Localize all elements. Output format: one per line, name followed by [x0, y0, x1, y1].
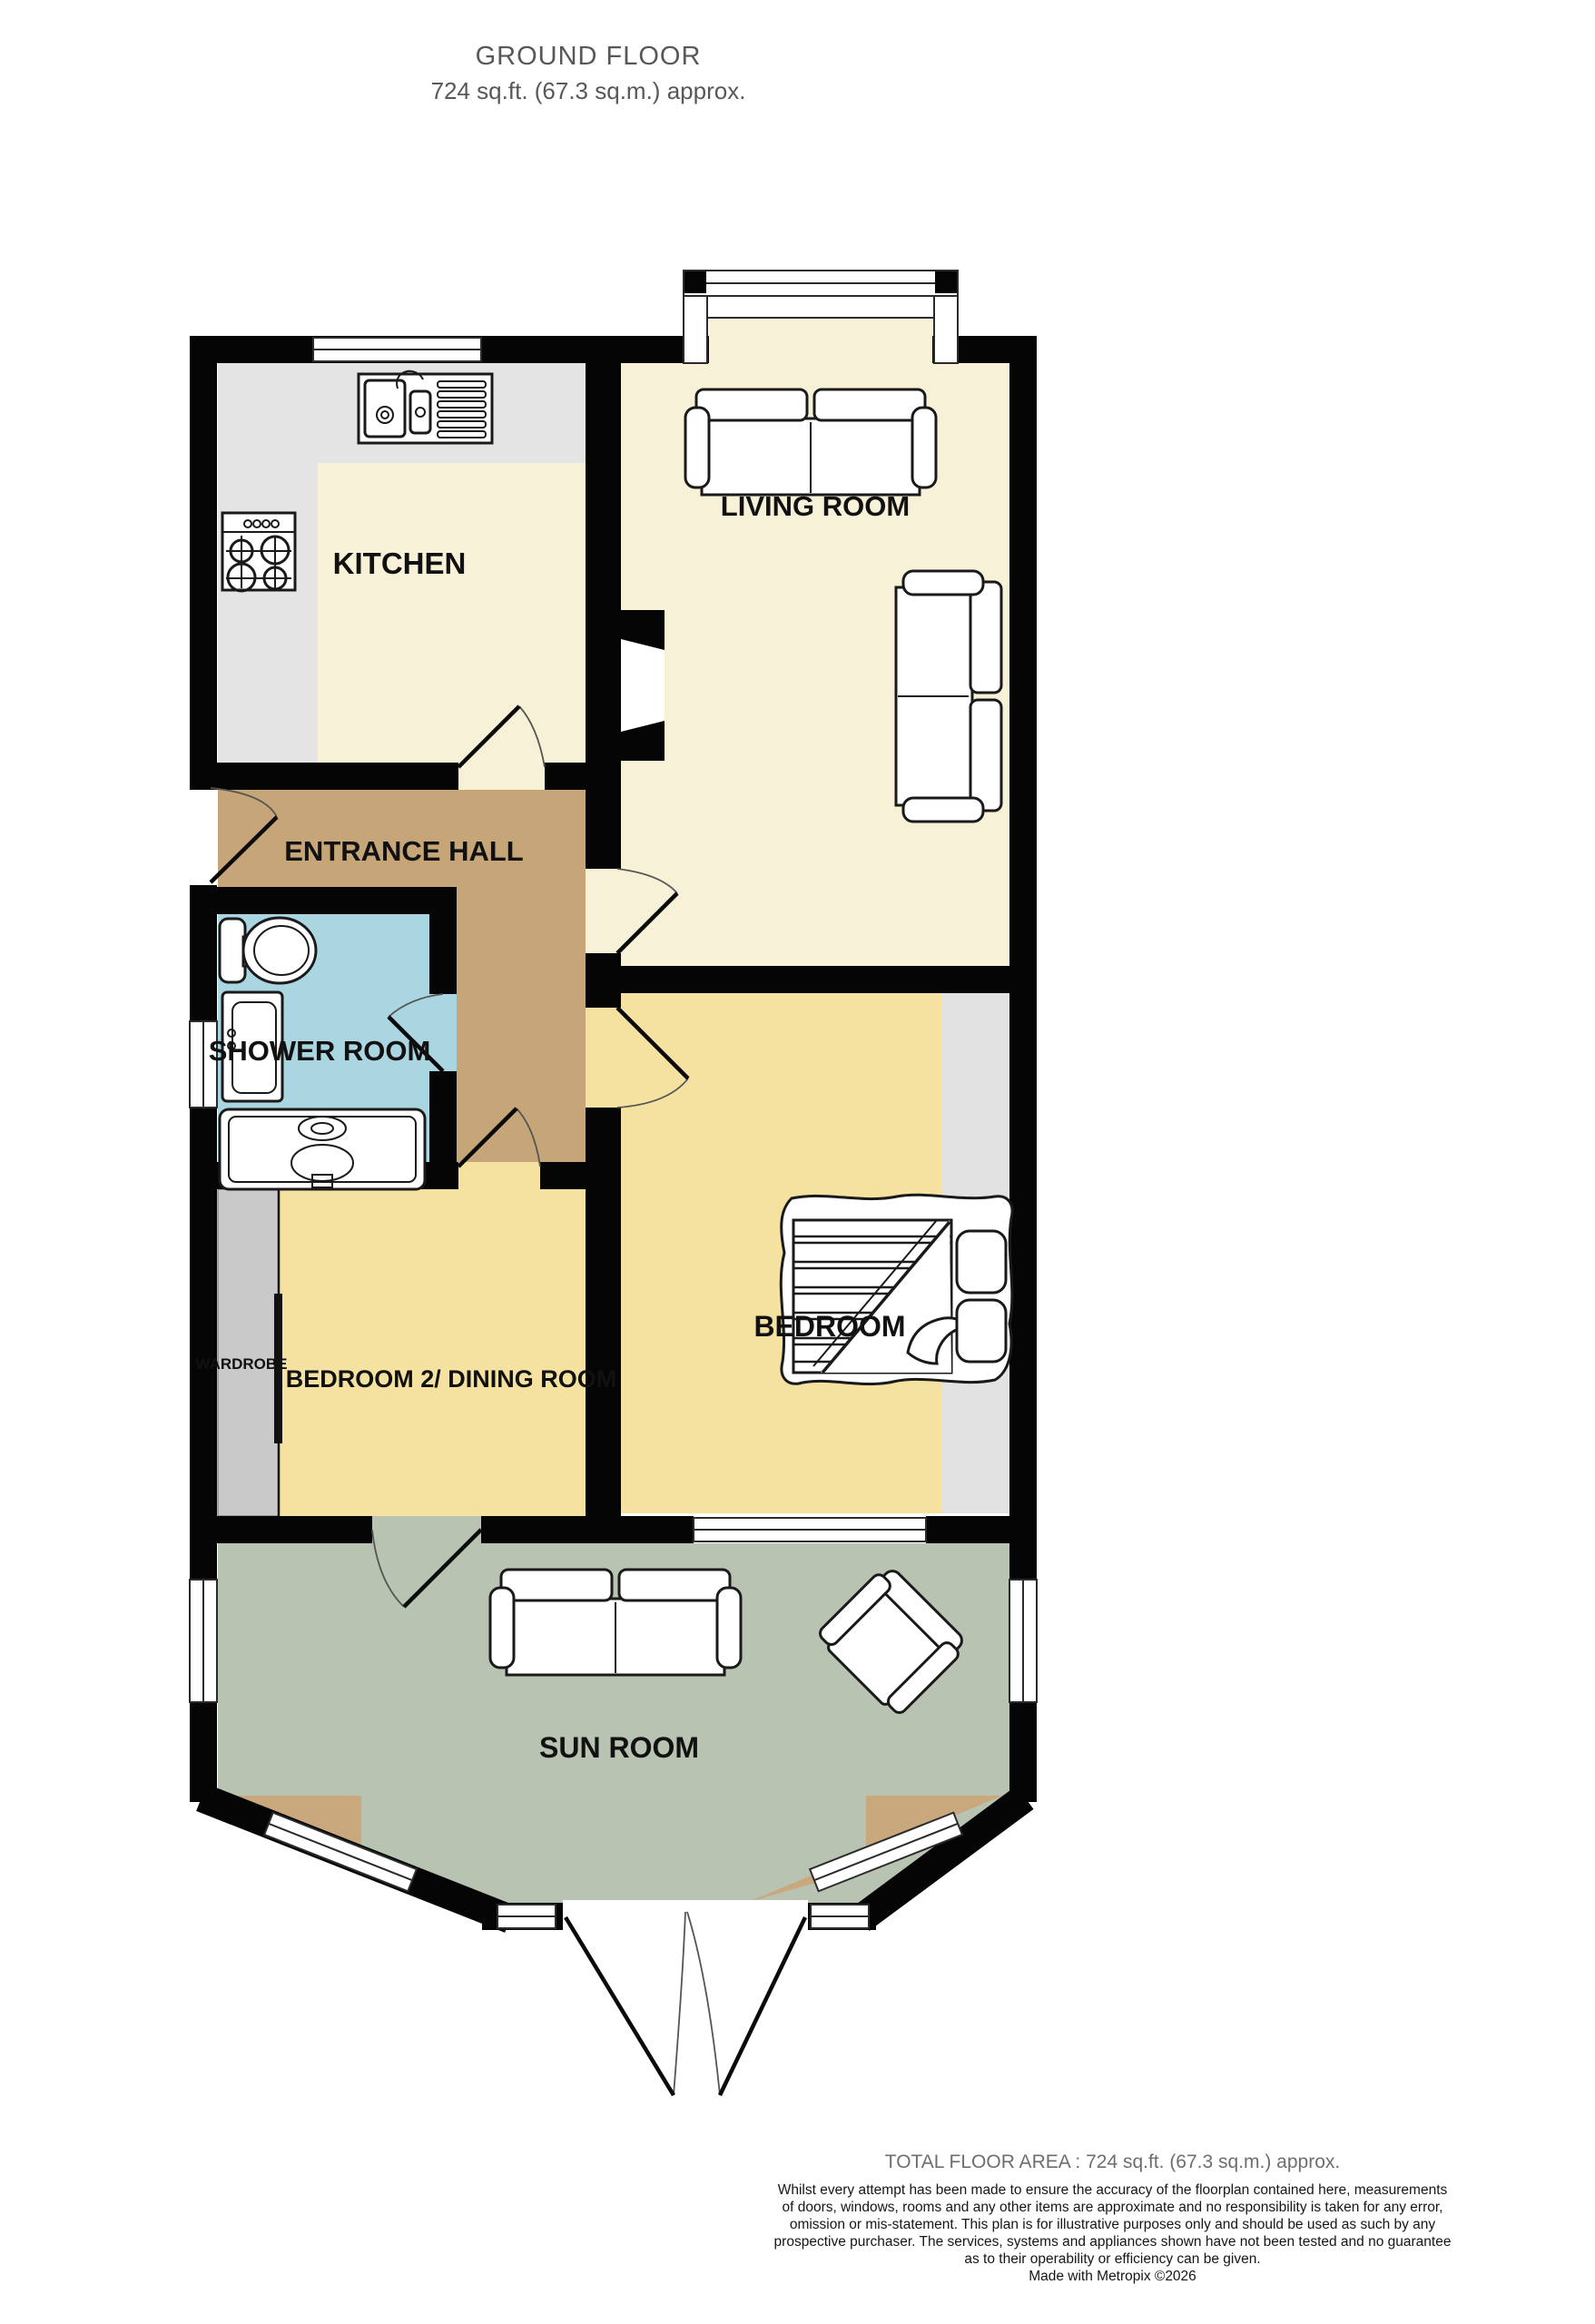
- shower-room-label: SHOWER ROOM: [209, 1035, 431, 1067]
- footer: TOTAL FLOOR AREA : 724 sq.ft. (67.3 sq.m…: [715, 2152, 1510, 2285]
- wall: [586, 363, 621, 610]
- wall: [545, 763, 621, 790]
- kitchen-counter-left: [218, 463, 318, 763]
- wall: [429, 1071, 457, 1162]
- wall: [540, 1162, 621, 1189]
- double-bed-icon: [781, 1195, 1012, 1384]
- floorplan-page: GROUND FLOOR 724 sq.ft. (67.3 sq.m.) app…: [0, 0, 1595, 2324]
- entrance-hall-label: ENTRANCE HALL: [284, 835, 524, 867]
- wash-basin-icon: [220, 1109, 425, 1189]
- wall: [190, 887, 457, 914]
- sun-room-label: SUN ROOM: [539, 1731, 699, 1764]
- threshold: [586, 869, 621, 953]
- disclaimer-line: omission or mis-statement. This plan is …: [715, 2216, 1510, 2233]
- wall: [190, 763, 458, 790]
- wall: [586, 953, 621, 1008]
- kitchen-window: [313, 338, 481, 361]
- bedroom-label: BEDROOM: [753, 1310, 905, 1343]
- pillow-icon: [957, 1300, 1006, 1362]
- cooktop-icon: [222, 513, 295, 591]
- disclaimer-line: of doors, windows, rooms and any other i…: [715, 2199, 1510, 2216]
- bay-floor: [709, 318, 932, 365]
- wall: [1009, 1702, 1037, 1802]
- floorplan-drawing: KITCHEN LIVING ROOM ENTRANCE HALL SHOWER…: [0, 0, 1595, 2324]
- wall: [190, 1516, 372, 1543]
- sunroom-window-bottom-left: [497, 1905, 556, 1928]
- living-room-label: LIVING ROOM: [721, 490, 910, 522]
- credit-line: Made with Metropix ©2026: [715, 2268, 1510, 2285]
- sunroom-window-left: [190, 1580, 217, 1702]
- wall: [926, 1516, 1037, 1543]
- disclaimer-line: as to their operability or efficiency ca…: [715, 2250, 1510, 2268]
- kitchen-label: KITCHEN: [333, 547, 467, 580]
- threshold: [458, 763, 545, 790]
- chimney-recess: [621, 639, 665, 732]
- bedroom-sunroom-window: [694, 1518, 926, 1541]
- kitchen-sink-icon: [359, 371, 492, 443]
- wall: [429, 914, 457, 994]
- total-floor-area: TOTAL FLOOR AREA : 724 sq.ft. (67.3 sq.m…: [715, 2152, 1510, 2173]
- french-doors: [563, 1900, 808, 2095]
- wall: [481, 1516, 694, 1543]
- kitchen-floor: [318, 463, 586, 763]
- sunroom-window-right: [1009, 1580, 1037, 1702]
- bedroom2-label: BEDROOM 2/ DINING ROOM: [286, 1365, 617, 1393]
- wall: [1009, 336, 1037, 1580]
- wardrobe-label: WARDROBE: [195, 1355, 287, 1373]
- sunroom-window-bottom-right: [811, 1905, 869, 1928]
- threshold: [372, 1516, 481, 1543]
- toilet-icon: [220, 918, 316, 983]
- wall: [190, 336, 217, 788]
- pillow-icon: [957, 1231, 1006, 1293]
- disclaimer-line: prospective purchaser. The services, sys…: [715, 2233, 1510, 2250]
- threshold: [458, 1162, 540, 1189]
- disclaimer: Whilst every attempt has been made to en…: [715, 2181, 1510, 2268]
- wall: [621, 966, 1037, 993]
- disclaimer-line: Whilst every attempt has been made to en…: [715, 2181, 1510, 2199]
- wardrobe-strip: [218, 1189, 279, 1516]
- threshold: [586, 1008, 621, 1108]
